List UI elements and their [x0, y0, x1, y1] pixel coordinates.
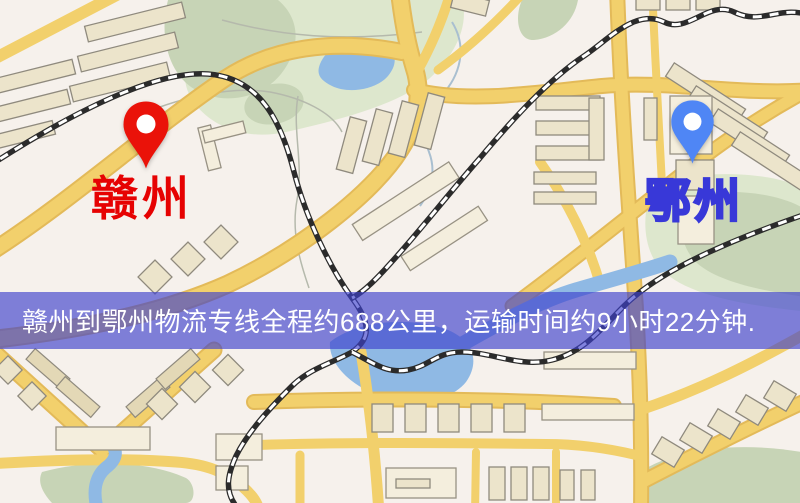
destination-pin[interactable]: [666, 99, 719, 165]
pin-hole: [137, 115, 156, 134]
pin-hole: [684, 113, 702, 131]
blue-location-pin-icon: [666, 99, 719, 165]
route-info-banner: 赣州到鄂州物流专线全程约688公里，运输时间约9小时22分钟.: [0, 292, 800, 349]
red-location-pin-icon: [121, 100, 171, 170]
destination-city-label: 鄂州: [628, 179, 760, 225]
route-info-text: 赣州到鄂州物流专线全程约688公里，运输时间约9小时22分钟.: [22, 302, 755, 339]
pin-body: [671, 100, 713, 163]
origin-city-label: 赣州: [72, 177, 212, 224]
map-canvas[interactable]: [0, 0, 800, 503]
logistics-route-map: 赣州 鄂州 赣州到鄂州物流专线全程约688公里，运输时间约9小时22分钟.: [0, 0, 800, 503]
origin-pin[interactable]: [121, 100, 171, 170]
pin-body: [124, 102, 169, 169]
